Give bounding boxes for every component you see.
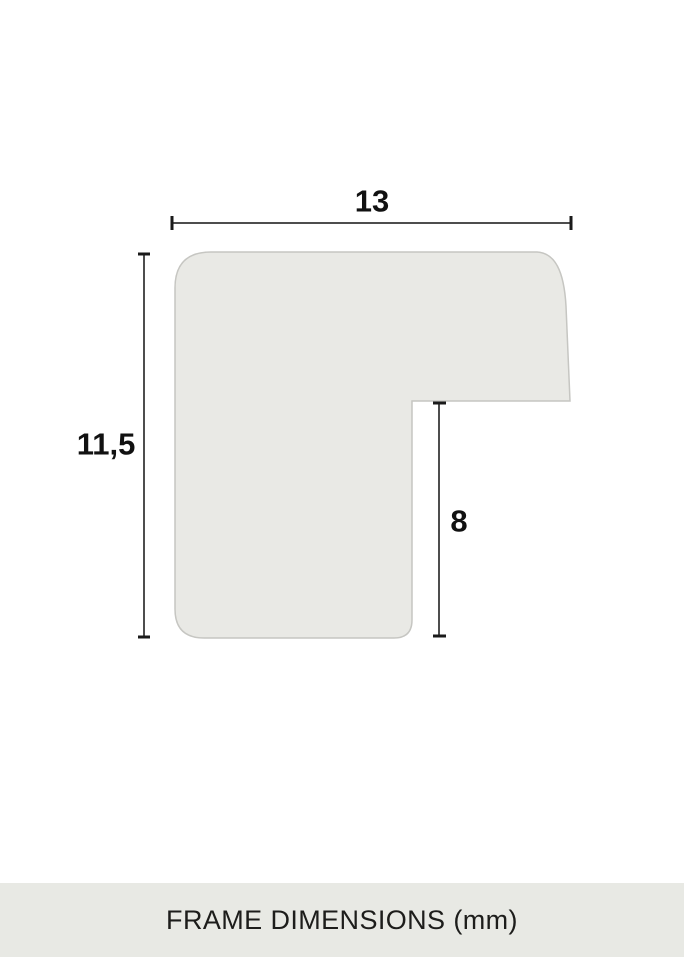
width-dimension-label: 13 (355, 186, 389, 217)
height-dimension-line (138, 254, 150, 637)
footer-bar: FRAME DIMENSIONS (mm) (0, 883, 684, 957)
rabbet-height-dimension-line (433, 403, 446, 636)
height-dimension-label: 11,5 (77, 429, 136, 460)
frame-dimensions-diagram: 13 11,5 8 FRAME DIMENSIONS (mm) (0, 0, 684, 957)
rabbet-height-dimension-label: 8 (450, 506, 467, 537)
frame-profile-shape (175, 252, 570, 638)
footer-title: FRAME DIMENSIONS (mm) (166, 905, 518, 936)
